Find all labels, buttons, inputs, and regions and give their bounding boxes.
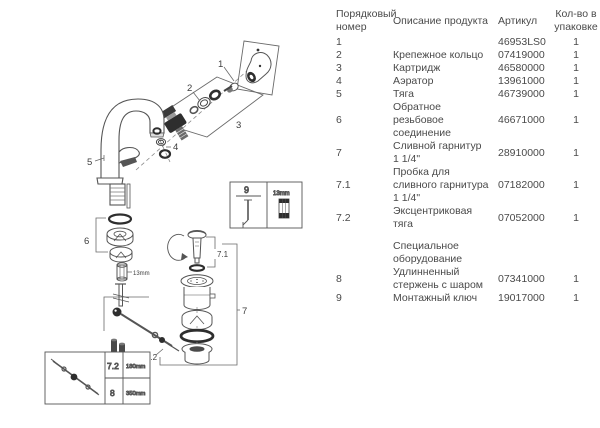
- callout-1: 1: [218, 59, 223, 70]
- mounting-hardware: [107, 215, 133, 282]
- row-number: 5: [336, 88, 393, 101]
- callout-2: 2: [187, 83, 192, 94]
- row-number: 7: [336, 147, 393, 160]
- table-row: 7 Сливной гарнитур 1 1/4" 28910000 1: [336, 140, 598, 166]
- row-article: 46953LS0: [498, 36, 554, 49]
- callout-6: 6: [84, 236, 89, 247]
- size-reference-box: 7.2 180mm 8 350mm: [45, 352, 150, 404]
- row-description: Обратное резьбовое соединение: [393, 101, 498, 140]
- key-box-number: 9: [244, 185, 249, 195]
- table-row: 7.2 Эксцентриковая тяга 07052000 1: [336, 205, 598, 231]
- row-number: 7.2: [336, 212, 393, 225]
- fastening-rings: [189, 86, 232, 115]
- row-number: 3: [336, 62, 393, 75]
- row-description: Крепежное кольцо: [393, 49, 498, 62]
- row-quantity: 1: [554, 36, 598, 49]
- table-row: 2 Крепежное кольцо 07419000 1: [336, 49, 598, 62]
- header-description: Описание продукта: [393, 15, 498, 28]
- callout-4: 4: [173, 142, 178, 153]
- row-quantity: 1: [554, 49, 598, 62]
- row-article: 07419000: [498, 49, 554, 62]
- table-row: 5 Тяга 46739000 1: [336, 88, 598, 101]
- row-description: Картридж: [393, 62, 498, 75]
- callout-labels: 1 2 3 4 5 6 7 7.1 7.2 13mm: [84, 59, 247, 362]
- row-description: Сливной гарнитур 1 1/4": [393, 140, 498, 166]
- row-number: 1: [336, 36, 393, 49]
- row-number: 8: [336, 273, 393, 286]
- row-article: 46580000: [498, 62, 554, 75]
- row-number: 2: [336, 49, 393, 62]
- row-description: Монтажный ключ: [393, 292, 498, 305]
- callout-3: 3: [236, 120, 241, 131]
- row-number: 7.1: [336, 179, 393, 192]
- row-quantity: 1: [554, 75, 598, 88]
- row-quantity: 1: [554, 179, 598, 192]
- handle-lever: [226, 49, 271, 94]
- header-number: Порядковый номер: [336, 8, 393, 34]
- nut-size-label: 13mm: [133, 271, 150, 277]
- row-description: Тяга: [393, 88, 498, 101]
- table-row: 1 46953LS0 1: [336, 36, 598, 49]
- row-quantity: 1: [554, 273, 598, 286]
- key-socket-size: 13mm: [273, 191, 290, 197]
- table-row: 9 Монтажный ключ 19017000 1: [336, 292, 598, 305]
- row-quantity: 1: [554, 114, 598, 127]
- row-article: 28910000: [498, 147, 554, 160]
- table-row: 8 Удлинненный стержень с шаром 07341000 …: [336, 266, 598, 292]
- exploded-parts-diagram: 1 2 3 4 5 6 7 7.1 7.2 13mm: [0, 0, 335, 428]
- row-description: Пробка для сливного гарнитура 1 1/4": [393, 166, 498, 205]
- row-article: 46739000: [498, 88, 554, 101]
- size-row1-id: 7.2: [107, 361, 119, 371]
- table-row: 4 Аэратор 13961000 1: [336, 75, 598, 88]
- table-header-row: Порядковый номер Описание продукта Артик…: [336, 8, 598, 34]
- row-article: 07341000: [498, 273, 554, 286]
- header-article: Артикул: [498, 15, 554, 28]
- row-quantity: 1: [554, 62, 598, 75]
- table-row: 3 Картридж 46580000 1: [336, 62, 598, 75]
- row-article: 07182000: [498, 179, 554, 192]
- row-description: Эксцентриковая тяга: [393, 205, 498, 231]
- size-row2-val: 350mm: [126, 391, 146, 397]
- row-article: 07052000: [498, 212, 554, 225]
- callout-7-1: 7.1: [217, 250, 229, 259]
- table-section-header: Специальное оборудование: [336, 240, 598, 266]
- size-row1-val: 180mm: [126, 364, 146, 370]
- table-row: 7.1 Пробка для сливного гарнитура 1 1/4"…: [336, 166, 598, 205]
- row-quantity: 1: [554, 147, 598, 160]
- row-description: Аэратор: [393, 75, 498, 88]
- row-quantity: 1: [554, 292, 598, 305]
- mounting-key-box: 9 13mm: [230, 182, 302, 228]
- row-description: Удлинненный стержень с шаром: [393, 266, 498, 292]
- parts-table: Порядковый номер Описание продукта Артик…: [336, 8, 598, 305]
- callout-7: 7: [242, 306, 247, 317]
- parts-catalog-page: 1 2 3 4 5 6 7 7.1 7.2 13mm: [0, 0, 600, 428]
- row-quantity: 1: [554, 88, 598, 101]
- rod-linkage: [104, 284, 179, 355]
- table-row: 6 Обратное резьбовое соединение 46671000…: [336, 101, 598, 140]
- row-number: 4: [336, 75, 393, 88]
- row-article: 13961000: [498, 75, 554, 88]
- row-quantity: 1: [554, 212, 598, 225]
- row-number: 9: [336, 292, 393, 305]
- callout-5: 5: [87, 157, 92, 168]
- section-header-label: Специальное оборудование: [393, 240, 498, 266]
- table-section-gap: [336, 231, 598, 240]
- drain-assembly: [168, 231, 215, 365]
- row-number: 6: [336, 114, 393, 127]
- row-article: 46671000: [498, 114, 554, 127]
- row-article: 19017000: [498, 292, 554, 305]
- size-row2-id: 8: [110, 388, 115, 398]
- header-quantity: Кол-во в упаковке: [554, 8, 598, 34]
